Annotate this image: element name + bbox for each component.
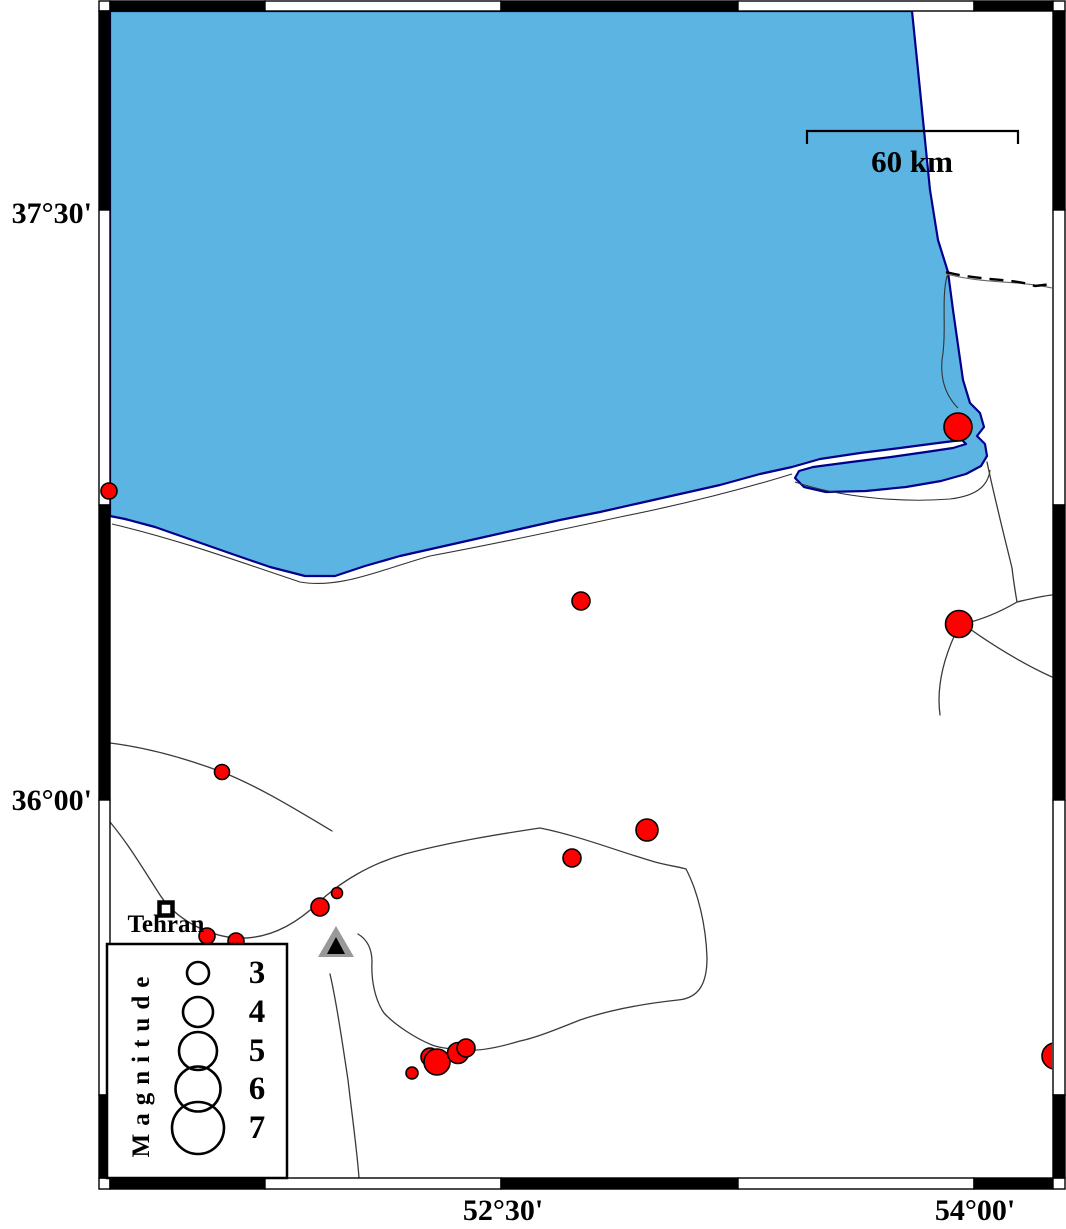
earthquake-marker bbox=[215, 765, 230, 780]
lat-label-37-30: 37°30' bbox=[0, 196, 92, 232]
map-canvas bbox=[0, 0, 1066, 1229]
earthquake-marker bbox=[311, 898, 329, 916]
legend-title: Magnitude bbox=[126, 953, 158, 1173]
earthquake-marker bbox=[406, 1067, 418, 1079]
earthquake-marker bbox=[572, 592, 590, 610]
earthquake-marker bbox=[563, 849, 581, 867]
lat-label-36-00: 36°00' bbox=[0, 783, 92, 819]
lon-label-52-30: 52°30' bbox=[418, 1193, 588, 1229]
scale-bar-label: 60 km bbox=[827, 145, 997, 179]
earthquake-marker bbox=[101, 483, 117, 499]
map-figure: 37°30' 36°00' 52°30' 54°00' 60 km Tehran… bbox=[0, 0, 1066, 1229]
city-label-tehran: Tehran bbox=[106, 912, 226, 938]
earthquake-marker bbox=[944, 413, 972, 441]
legend-value-3: 3 bbox=[227, 953, 287, 993]
legend-value-6: 6 bbox=[227, 1069, 287, 1109]
earthquake-marker bbox=[332, 888, 343, 899]
legend-value-4: 4 bbox=[227, 992, 287, 1032]
earthquake-marker bbox=[946, 611, 973, 638]
station-triangle bbox=[318, 926, 354, 957]
earthquake-marker bbox=[457, 1039, 475, 1057]
earthquake-marker bbox=[636, 819, 658, 841]
border-dashed-line bbox=[946, 272, 1052, 288]
caspian-sea bbox=[110, 11, 987, 576]
earthquake-marker bbox=[424, 1049, 450, 1075]
legend-value-7: 7 bbox=[227, 1108, 287, 1148]
lon-label-54-00: 54°00' bbox=[890, 1193, 1060, 1229]
legend-value-5: 5 bbox=[227, 1031, 287, 1071]
